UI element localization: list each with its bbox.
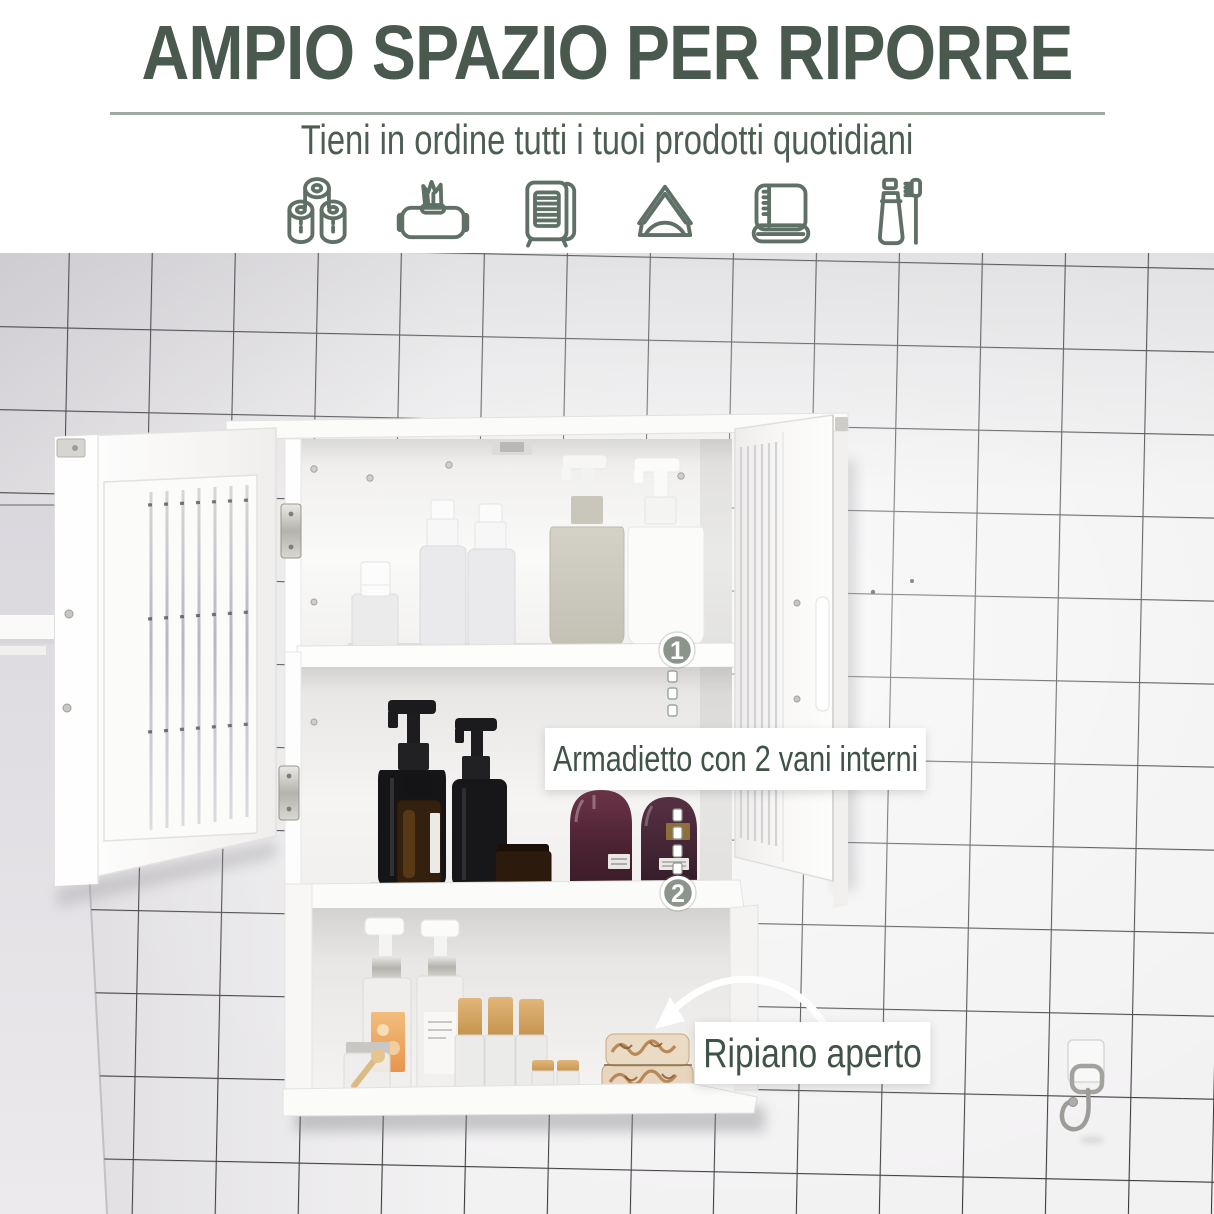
corner-bracket	[57, 439, 85, 457]
open-shelf-bottom-board	[283, 1083, 757, 1116]
wall-rail	[0, 615, 54, 655]
amber-jar	[495, 844, 551, 886]
jar-with-wooden-scoop	[344, 1042, 390, 1093]
wet-wipes-icon	[391, 170, 475, 254]
toothpaste-and-toothbrush-icon	[855, 170, 939, 254]
door-handle	[816, 597, 829, 711]
cabinet-callout-label: Armadietto con 2 vani interni	[545, 728, 926, 790]
purple-shampoo-bottle	[570, 790, 632, 886]
open-shelf-callout-label: Ripiano aperto	[695, 1022, 930, 1084]
svg-text:1: 1	[670, 637, 684, 665]
left-cabinet-door	[55, 428, 276, 886]
marker-1-badge: 1	[659, 632, 695, 668]
corner-bracket	[835, 417, 848, 431]
subtitle: Tieni in ordine tutti i tuoi prodotti qu…	[301, 117, 913, 163]
cabinet-right-side	[833, 413, 848, 908]
wall-screw	[871, 590, 875, 594]
tissue-dispenser-icon	[507, 170, 591, 254]
marker-1-dashes	[668, 671, 677, 716]
toilet-paper-rolls-icon	[275, 170, 359, 254]
svg-text:2: 2	[671, 880, 685, 908]
divider	[110, 112, 1105, 115]
napkin-holder-icon	[623, 170, 707, 254]
folded-towel-icon	[739, 170, 823, 254]
purple-shampoo-bottle	[641, 797, 697, 886]
marker-2-badge: 2	[660, 875, 696, 911]
product-infographic: 1 2 AMPIO SPAZIO PER RIPORRE Tieni in or…	[0, 0, 1214, 1214]
wall-screw	[910, 579, 914, 583]
feature-icons-row	[275, 170, 939, 254]
page-title: AMPIO SPAZIO PER RIPORRE	[141, 13, 1072, 94]
right-cabinet-door	[735, 415, 833, 881]
